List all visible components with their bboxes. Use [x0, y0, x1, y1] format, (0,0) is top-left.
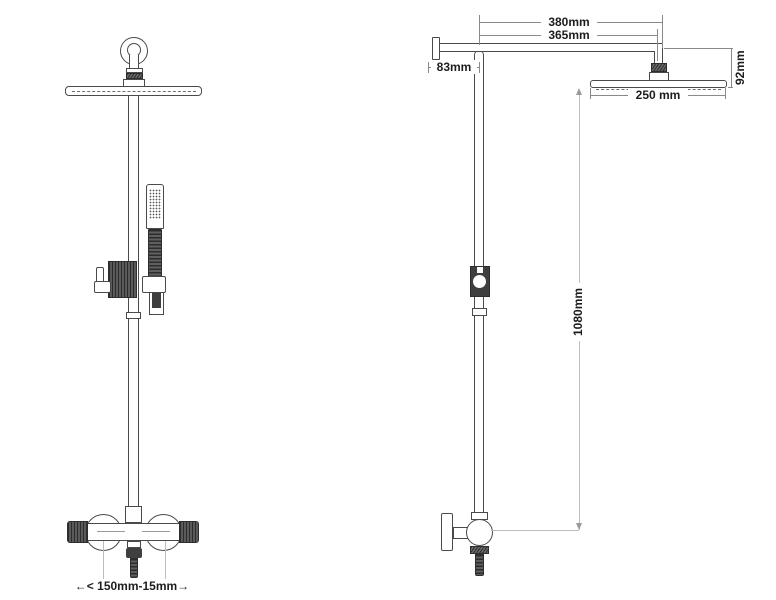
shower-arm-drop: [654, 51, 663, 63]
valve-body-seam-left: [97, 531, 125, 532]
dim-label-head-width: 250 mm: [628, 88, 688, 102]
diverter-housing: [127, 541, 141, 548]
wall-flange-bottom: [441, 513, 453, 551]
valve-body-side: [466, 519, 493, 546]
riser-valve-collar: [125, 506, 142, 523]
dim-label-inlet-spacing: ←< 150mm-15mm→: [64, 579, 200, 593]
hand-shower-holder: [142, 276, 166, 293]
valve-body-seam-right: [142, 531, 170, 532]
riser-coupling-side: [472, 308, 487, 316]
rain-shower-spray-face-front: [72, 91, 196, 93]
valve-inlet-left: [67, 521, 88, 543]
hanger-neck: [129, 55, 139, 69]
extension-arm-right: [662, 15, 663, 48]
inlet-spacing-extension-left: [103, 541, 104, 579]
dim-label-arm-reach: 365mm: [541, 28, 597, 42]
extension-arm-left: [479, 15, 480, 45]
tick-wall-offset-right: [479, 62, 480, 73]
dim-label-wall-offset: 83mm: [431, 60, 477, 74]
shower-technical-diagram: ←< 150mm-15mm→ 380mm 365mm: [0, 0, 776, 600]
valve-handle-side: [475, 554, 484, 576]
hand-shower-outlet-grip: [152, 293, 161, 308]
slider-bracket-pivot: [473, 275, 486, 288]
valve-inlet-right: [179, 521, 199, 543]
extension-head-drop-top: [664, 48, 737, 49]
shower-arm-side: [439, 43, 663, 52]
tick-wall-offset-left: [428, 62, 429, 73]
slider-knob: [96, 267, 104, 282]
dim-label-head-drop: 92mm: [733, 47, 748, 89]
extension-head-width-right: [725, 88, 726, 99]
riser-coupling-front: [126, 312, 141, 319]
diverter-knob: [126, 548, 142, 558]
dim-line-head-drop: [731, 48, 732, 88]
dim-label-arm-length: 380mm: [541, 15, 597, 29]
extension-head-width-left: [590, 88, 591, 99]
slider-bracket-slot: [477, 267, 483, 273]
arrow-riser-height-bottom: [576, 523, 582, 530]
slider-knob-arm: [94, 281, 111, 293]
riser-pipe-front: [128, 96, 139, 513]
extension-arm-reach: [657, 29, 658, 61]
hand-shower-spray-face: [149, 189, 161, 219]
hand-shower-handle: [148, 229, 162, 277]
valve-outlet-knurl-side: [470, 546, 489, 554]
extension-riser-height-bottom: [491, 530, 579, 531]
head-connector-knurl-side: [651, 63, 667, 72]
inlet-spacing-extension-right: [165, 541, 166, 579]
slider-bracket-front: [108, 261, 137, 298]
arrow-riser-height-top: [576, 88, 582, 95]
rain-shower-head-side: [590, 80, 727, 88]
diverter-stem: [130, 558, 138, 578]
dim-label-riser-height: 1080mm: [570, 283, 587, 341]
